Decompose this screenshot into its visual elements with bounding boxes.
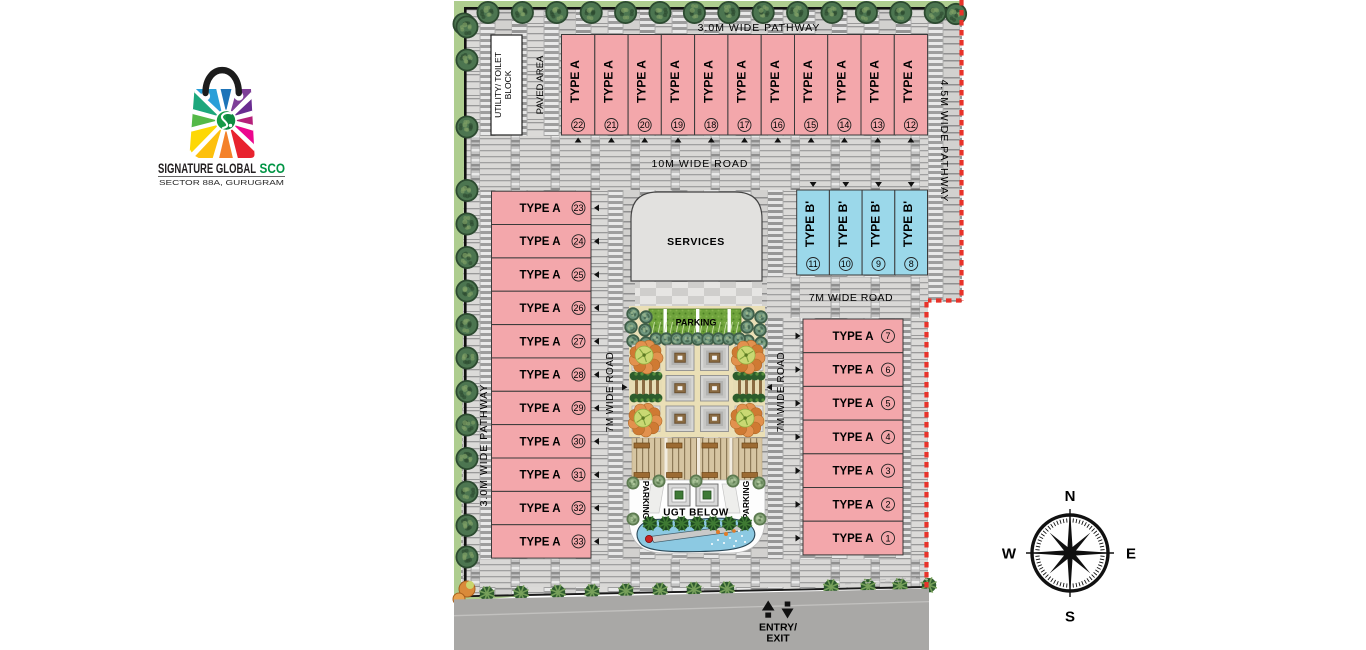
svg-text:TYPE A: TYPE A (868, 60, 882, 103)
svg-text:TYPE A: TYPE A (832, 533, 873, 545)
svg-text:7M WIDE ROAD: 7M WIDE ROAD (605, 352, 616, 432)
svg-text:TYPE A: TYPE A (519, 236, 560, 248)
svg-text:14: 14 (839, 120, 849, 130)
svg-text:1: 1 (885, 533, 890, 543)
svg-text:TYPE A: TYPE A (832, 365, 873, 377)
svg-text:30: 30 (573, 437, 583, 447)
svg-text:13: 13 (873, 120, 883, 130)
svg-text:TYPE A: TYPE A (735, 60, 749, 103)
svg-text:22: 22 (573, 120, 583, 130)
svg-text:TYPE A: TYPE A (832, 398, 873, 410)
svg-text:S: S (1065, 609, 1075, 626)
svg-text:N: N (1065, 488, 1076, 505)
svg-text:29: 29 (573, 403, 583, 413)
svg-text:3.0M WIDE PATHWAY: 3.0M WIDE PATHWAY (478, 384, 490, 507)
svg-text:8: 8 (909, 259, 914, 269)
svg-text:TYPE B': TYPE B' (803, 201, 817, 247)
svg-text:11: 11 (808, 259, 817, 269)
svg-text:3.0M WIDE PATHWAY: 3.0M WIDE PATHWAY (698, 22, 821, 34)
svg-text:12: 12 (906, 120, 916, 130)
svg-text:TYPE A: TYPE A (519, 403, 560, 415)
svg-text:SCO: SCO (260, 160, 286, 176)
svg-text:10M WIDE ROAD: 10M WIDE ROAD (651, 158, 748, 170)
svg-text:BLOCK: BLOCK (503, 70, 513, 99)
svg-text:33: 33 (573, 537, 583, 547)
svg-text:18: 18 (706, 120, 716, 130)
svg-text:TYPE A: TYPE A (519, 470, 560, 482)
svg-text:TYPE A: TYPE A (519, 203, 560, 215)
svg-text:E: E (1126, 546, 1136, 563)
svg-text:10: 10 (841, 259, 851, 269)
svg-text:PARKING: PARKING (676, 318, 717, 328)
svg-text:2: 2 (885, 500, 890, 510)
svg-text:TYPE A: TYPE A (519, 336, 560, 348)
svg-text:20: 20 (640, 120, 650, 130)
svg-text:6: 6 (885, 365, 890, 375)
svg-text:W: W (1002, 546, 1017, 563)
svg-text:TYPE A: TYPE A (901, 60, 915, 103)
svg-text:TYPE A: TYPE A (568, 60, 582, 103)
svg-text:21: 21 (606, 120, 616, 130)
svg-text:4.5M WIDE PATHWAY: 4.5M WIDE PATHWAY (938, 80, 950, 203)
svg-text:TYPE A: TYPE A (519, 436, 560, 448)
svg-text:PARKING: PARKING (741, 480, 751, 519)
svg-text:SECTOR 88A, GURUGRAM: SECTOR 88A, GURUGRAM (159, 178, 284, 187)
svg-text:TYPE A: TYPE A (635, 60, 649, 103)
svg-text:TYPE A: TYPE A (601, 60, 615, 103)
svg-text:28: 28 (573, 370, 583, 380)
svg-text:26: 26 (573, 303, 583, 313)
svg-text:32: 32 (573, 503, 583, 513)
svg-text:TYPE A: TYPE A (519, 370, 560, 382)
svg-text:EXIT: EXIT (766, 633, 790, 645)
svg-text:TYPE A: TYPE A (519, 303, 560, 315)
svg-text:TYPE A: TYPE A (519, 270, 560, 282)
svg-text:31: 31 (573, 470, 583, 480)
svg-text:TYPE A: TYPE A (668, 60, 682, 103)
svg-text:TYPE A: TYPE A (768, 60, 782, 103)
svg-text:TYPE B': TYPE B' (869, 201, 883, 247)
svg-text:SIGNATURE GLOBAL: SIGNATURE GLOBAL (158, 160, 256, 176)
svg-text:5: 5 (885, 398, 890, 408)
svg-text:9: 9 (876, 259, 881, 269)
svg-text:TYPE A: TYPE A (801, 60, 815, 103)
svg-text:TYPE A: TYPE A (832, 432, 873, 444)
svg-text:TYPE A: TYPE A (834, 60, 848, 103)
svg-text:7M WIDE ROAD: 7M WIDE ROAD (776, 352, 787, 432)
svg-text:23: 23 (573, 203, 583, 213)
svg-text:19: 19 (673, 120, 683, 130)
svg-text:4: 4 (885, 432, 890, 442)
svg-text:TYPE B': TYPE B' (901, 201, 915, 247)
svg-text:TYPE A: TYPE A (519, 536, 560, 548)
svg-text:TYPE B': TYPE B' (836, 201, 850, 247)
svg-text:PAVED AREA: PAVED AREA (535, 55, 546, 114)
svg-text:7M WIDE ROAD: 7M WIDE ROAD (809, 292, 893, 304)
svg-text:25: 25 (573, 270, 583, 280)
svg-text:TYPE A: TYPE A (519, 503, 560, 515)
svg-text:TYPE A: TYPE A (701, 60, 715, 103)
svg-text:UTILITY/ TOILET: UTILITY/ TOILET (493, 52, 503, 118)
svg-text:27: 27 (573, 337, 583, 347)
svg-text:7: 7 (885, 331, 890, 341)
svg-text:TYPE A: TYPE A (832, 499, 873, 511)
svg-text:SERVICES: SERVICES (667, 236, 725, 248)
svg-text:16: 16 (773, 120, 783, 130)
svg-text:24: 24 (573, 236, 583, 246)
svg-text:TYPE A: TYPE A (832, 331, 873, 343)
svg-text:PARKING: PARKING (641, 481, 651, 520)
svg-text:3: 3 (885, 466, 890, 476)
svg-text:15: 15 (806, 120, 816, 130)
svg-text:TYPE A: TYPE A (832, 466, 873, 478)
svg-text:17: 17 (739, 120, 749, 130)
